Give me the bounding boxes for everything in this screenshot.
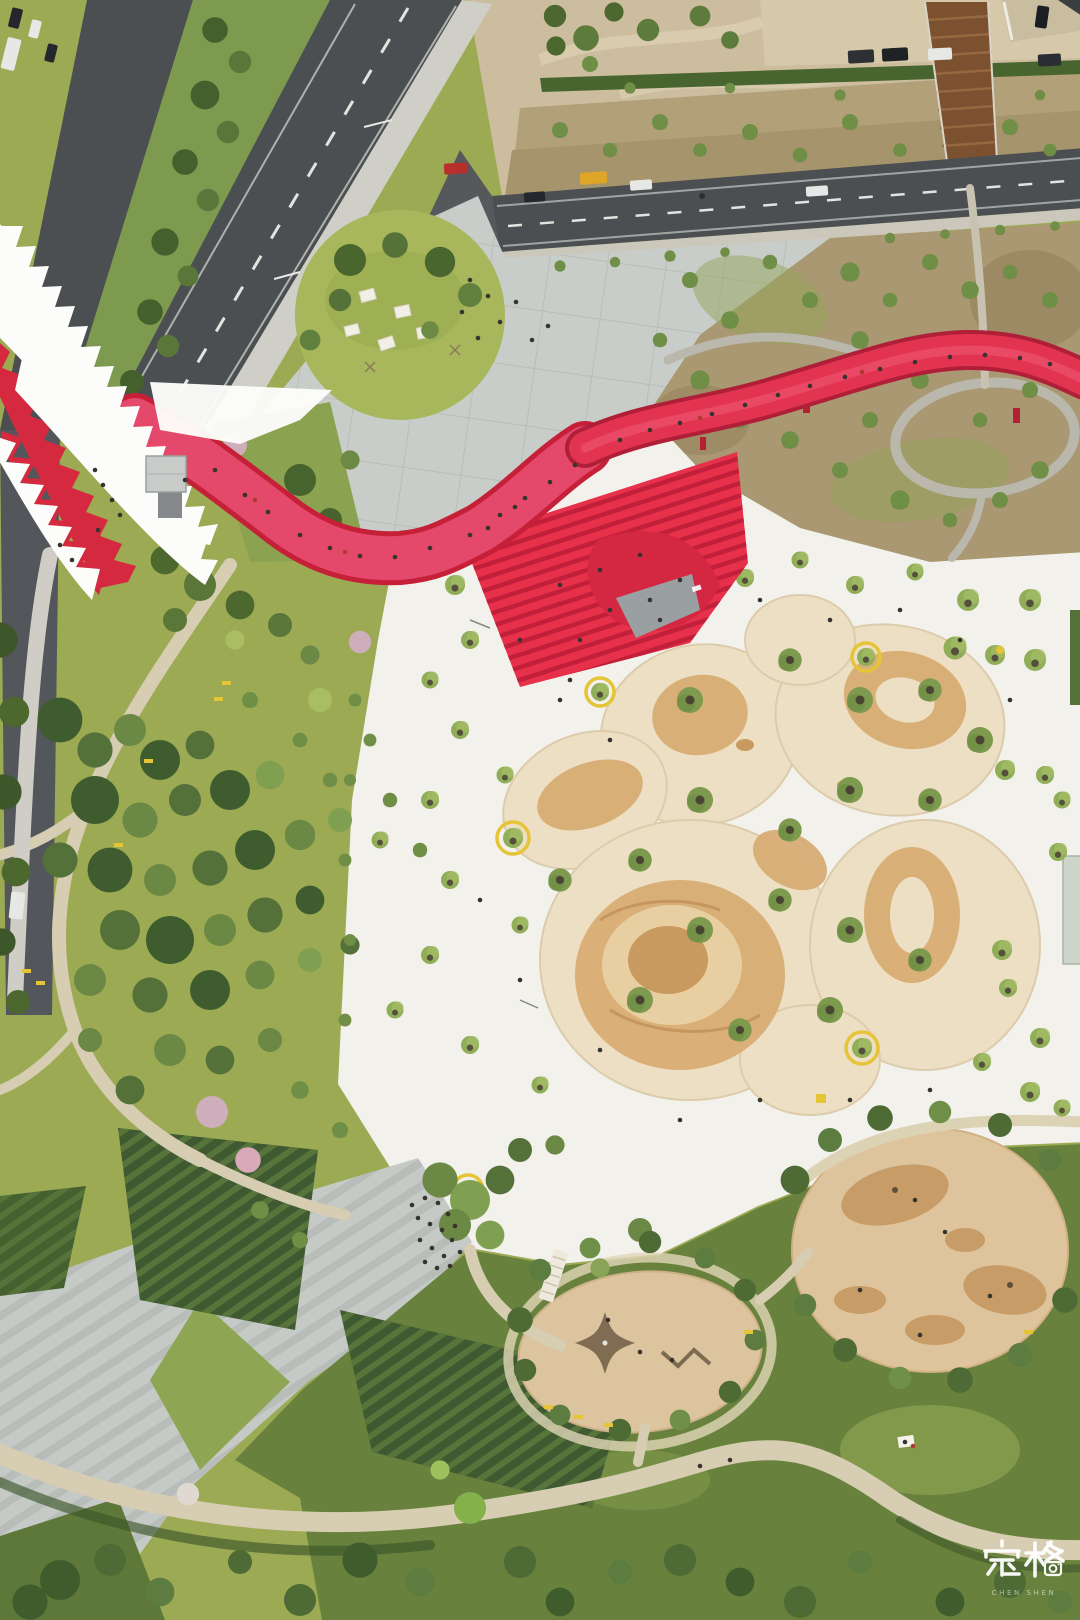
truck — [580, 171, 608, 185]
watermark-subtext: CHEN SHEN — [992, 1589, 1057, 1597]
car — [806, 185, 829, 197]
car — [524, 191, 546, 202]
scooter — [699, 193, 705, 199]
building-roof — [1063, 856, 1080, 964]
aerial-photo: 定格 — [0, 0, 1080, 1620]
car — [9, 891, 26, 919]
car — [630, 179, 653, 191]
bridge-column — [700, 437, 706, 450]
hedge-strip — [1070, 610, 1080, 705]
car — [444, 162, 468, 175]
park-aerial-scene: CHEN SHEN — [0, 0, 1080, 1620]
bridge-column — [1013, 408, 1020, 423]
